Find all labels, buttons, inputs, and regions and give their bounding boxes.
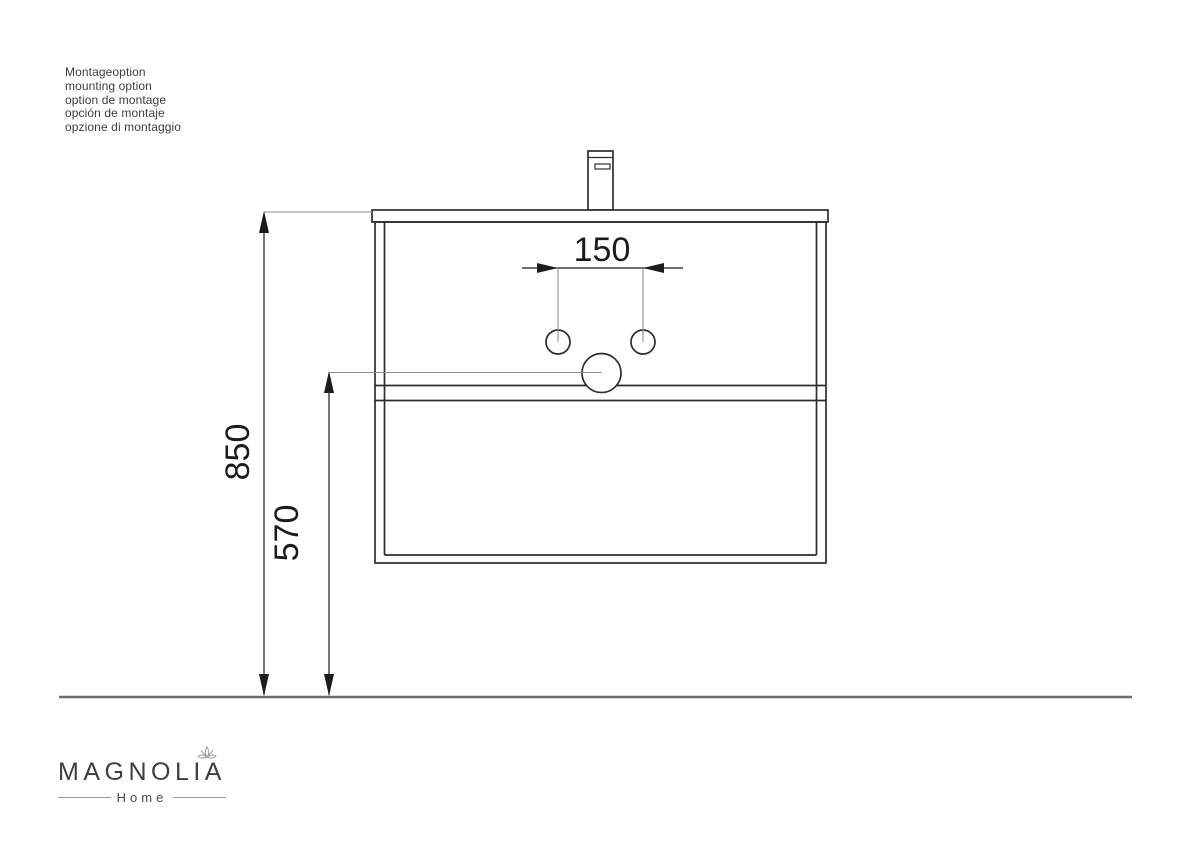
dimension-150: 150 <box>522 231 683 342</box>
countertop <box>372 210 828 222</box>
brand-subtitle-row: Home <box>58 790 226 805</box>
dimension-570: 570 <box>268 371 602 696</box>
dim-850-arrow-down-icon <box>259 674 269 696</box>
magnolia-flower-icon <box>194 744 220 762</box>
brand-name: MAGNOLIA <box>58 758 226 787</box>
faucet-body <box>588 151 613 210</box>
dimension-850: 850 <box>219 211 372 696</box>
subtitle-rule-left <box>58 797 111 798</box>
dim-850-arrow-up-icon <box>259 211 269 233</box>
dim-570-arrow-up-icon <box>324 371 334 393</box>
dim-150-arrow-right-icon <box>643 263 664 273</box>
brand-logo: MAGNOLIA Home <box>58 758 226 805</box>
faucet <box>588 151 613 210</box>
dim-570-arrow-down-icon <box>324 674 334 696</box>
dim-570-label: 570 <box>268 505 306 562</box>
dim-150-arrow-left-icon <box>537 263 558 273</box>
mounting-drawing: 150 850 570 <box>0 0 1200 849</box>
brand-subtitle: Home <box>117 790 168 805</box>
dim-850-label: 850 <box>219 424 257 481</box>
subtitle-rule-right <box>173 797 226 798</box>
dim-150-label: 150 <box>574 231 631 269</box>
page: Montageoption mounting option option de … <box>0 0 1200 849</box>
mounting-holes <box>546 330 655 393</box>
